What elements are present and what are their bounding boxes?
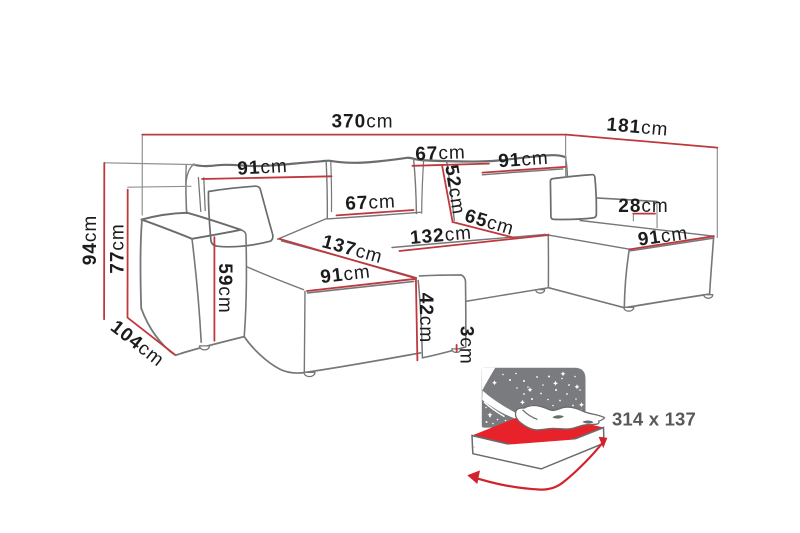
svg-text:67cm: 67cm [415, 142, 466, 165]
svg-text:314 x 137: 314 x 137 [612, 409, 696, 430]
svg-text:77cm: 77cm [107, 223, 128, 273]
svg-text:91cm: 91cm [237, 156, 289, 180]
svg-text:59cm: 59cm [214, 263, 235, 313]
svg-text:94cm: 94cm [80, 215, 101, 265]
svg-text:370cm: 370cm [331, 112, 393, 133]
svg-text:91cm: 91cm [637, 223, 690, 251]
svg-text:52cm: 52cm [440, 163, 469, 216]
svg-text:28cm: 28cm [618, 196, 668, 217]
svg-text:67cm: 67cm [345, 191, 396, 214]
svg-text:91cm: 91cm [498, 148, 550, 172]
svg-text:181cm: 181cm [606, 114, 670, 140]
svg-text:3cm: 3cm [455, 326, 476, 365]
svg-text:42cm: 42cm [415, 293, 436, 343]
